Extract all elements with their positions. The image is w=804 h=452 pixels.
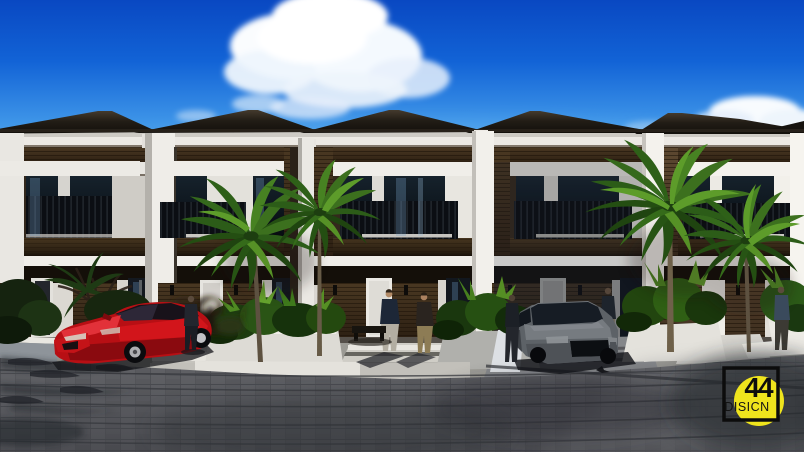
svg-text:DISICN: DISICN [724,400,769,414]
svg-text:44: 44 [744,372,774,403]
